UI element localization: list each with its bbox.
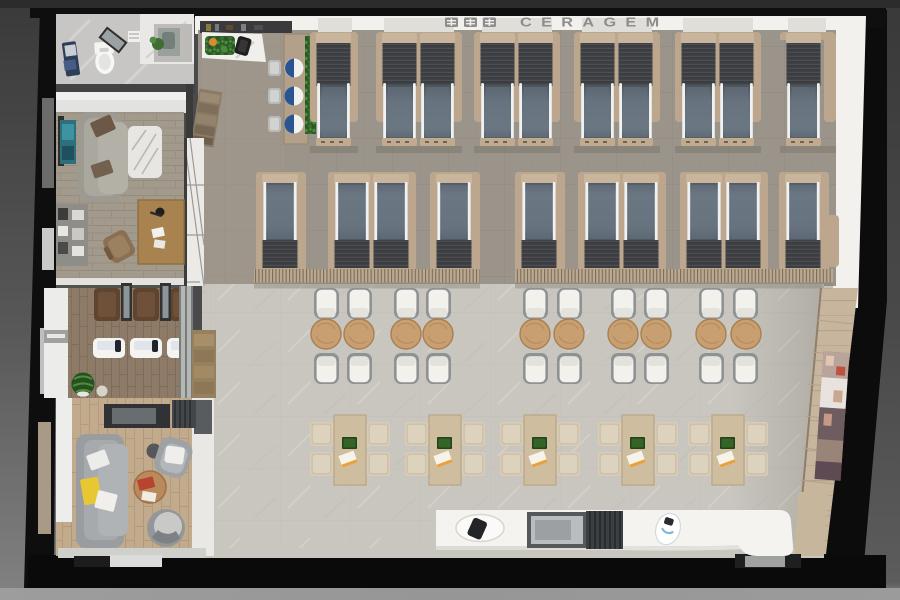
svg-text:CERAGEM: CERAGEM	[520, 16, 669, 30]
